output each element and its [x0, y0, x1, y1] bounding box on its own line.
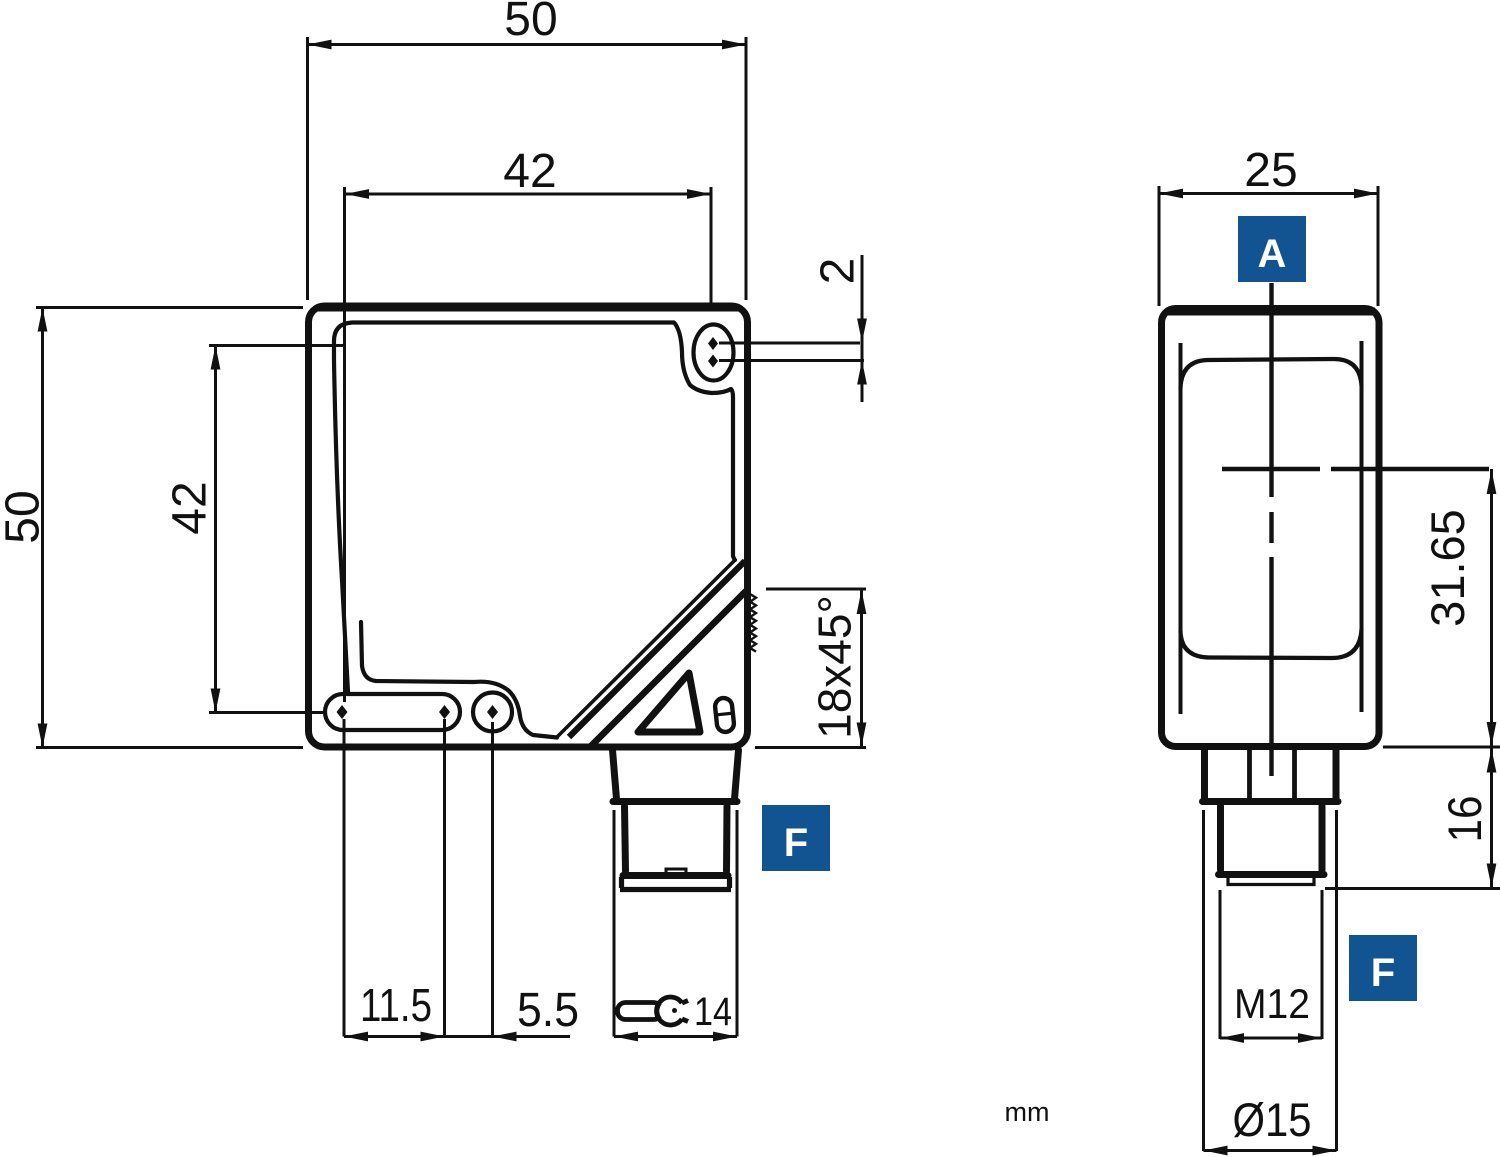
svg-text:31.65: 31.65 [1421, 509, 1474, 627]
svg-text:M12: M12 [1234, 980, 1310, 1027]
svg-text:A: A [1258, 232, 1287, 276]
svg-text:11.5: 11.5 [360, 979, 432, 1031]
svg-text:16: 16 [1438, 796, 1491, 843]
svg-text:F: F [1371, 951, 1395, 995]
svg-text:F: F [784, 821, 808, 865]
svg-text:25: 25 [1244, 144, 1297, 197]
svg-text:mm: mm [1005, 1097, 1050, 1127]
svg-text:18x45°: 18x45° [809, 595, 861, 739]
svg-text:2: 2 [811, 258, 864, 285]
svg-text:Ø15: Ø15 [1233, 1093, 1312, 1146]
svg-text:5.5: 5.5 [517, 984, 579, 1037]
svg-text:42: 42 [503, 145, 556, 198]
svg-text:14: 14 [694, 990, 732, 1034]
svg-text:42: 42 [163, 481, 216, 534]
svg-text:50: 50 [0, 490, 49, 543]
svg-text:50: 50 [504, 0, 557, 46]
